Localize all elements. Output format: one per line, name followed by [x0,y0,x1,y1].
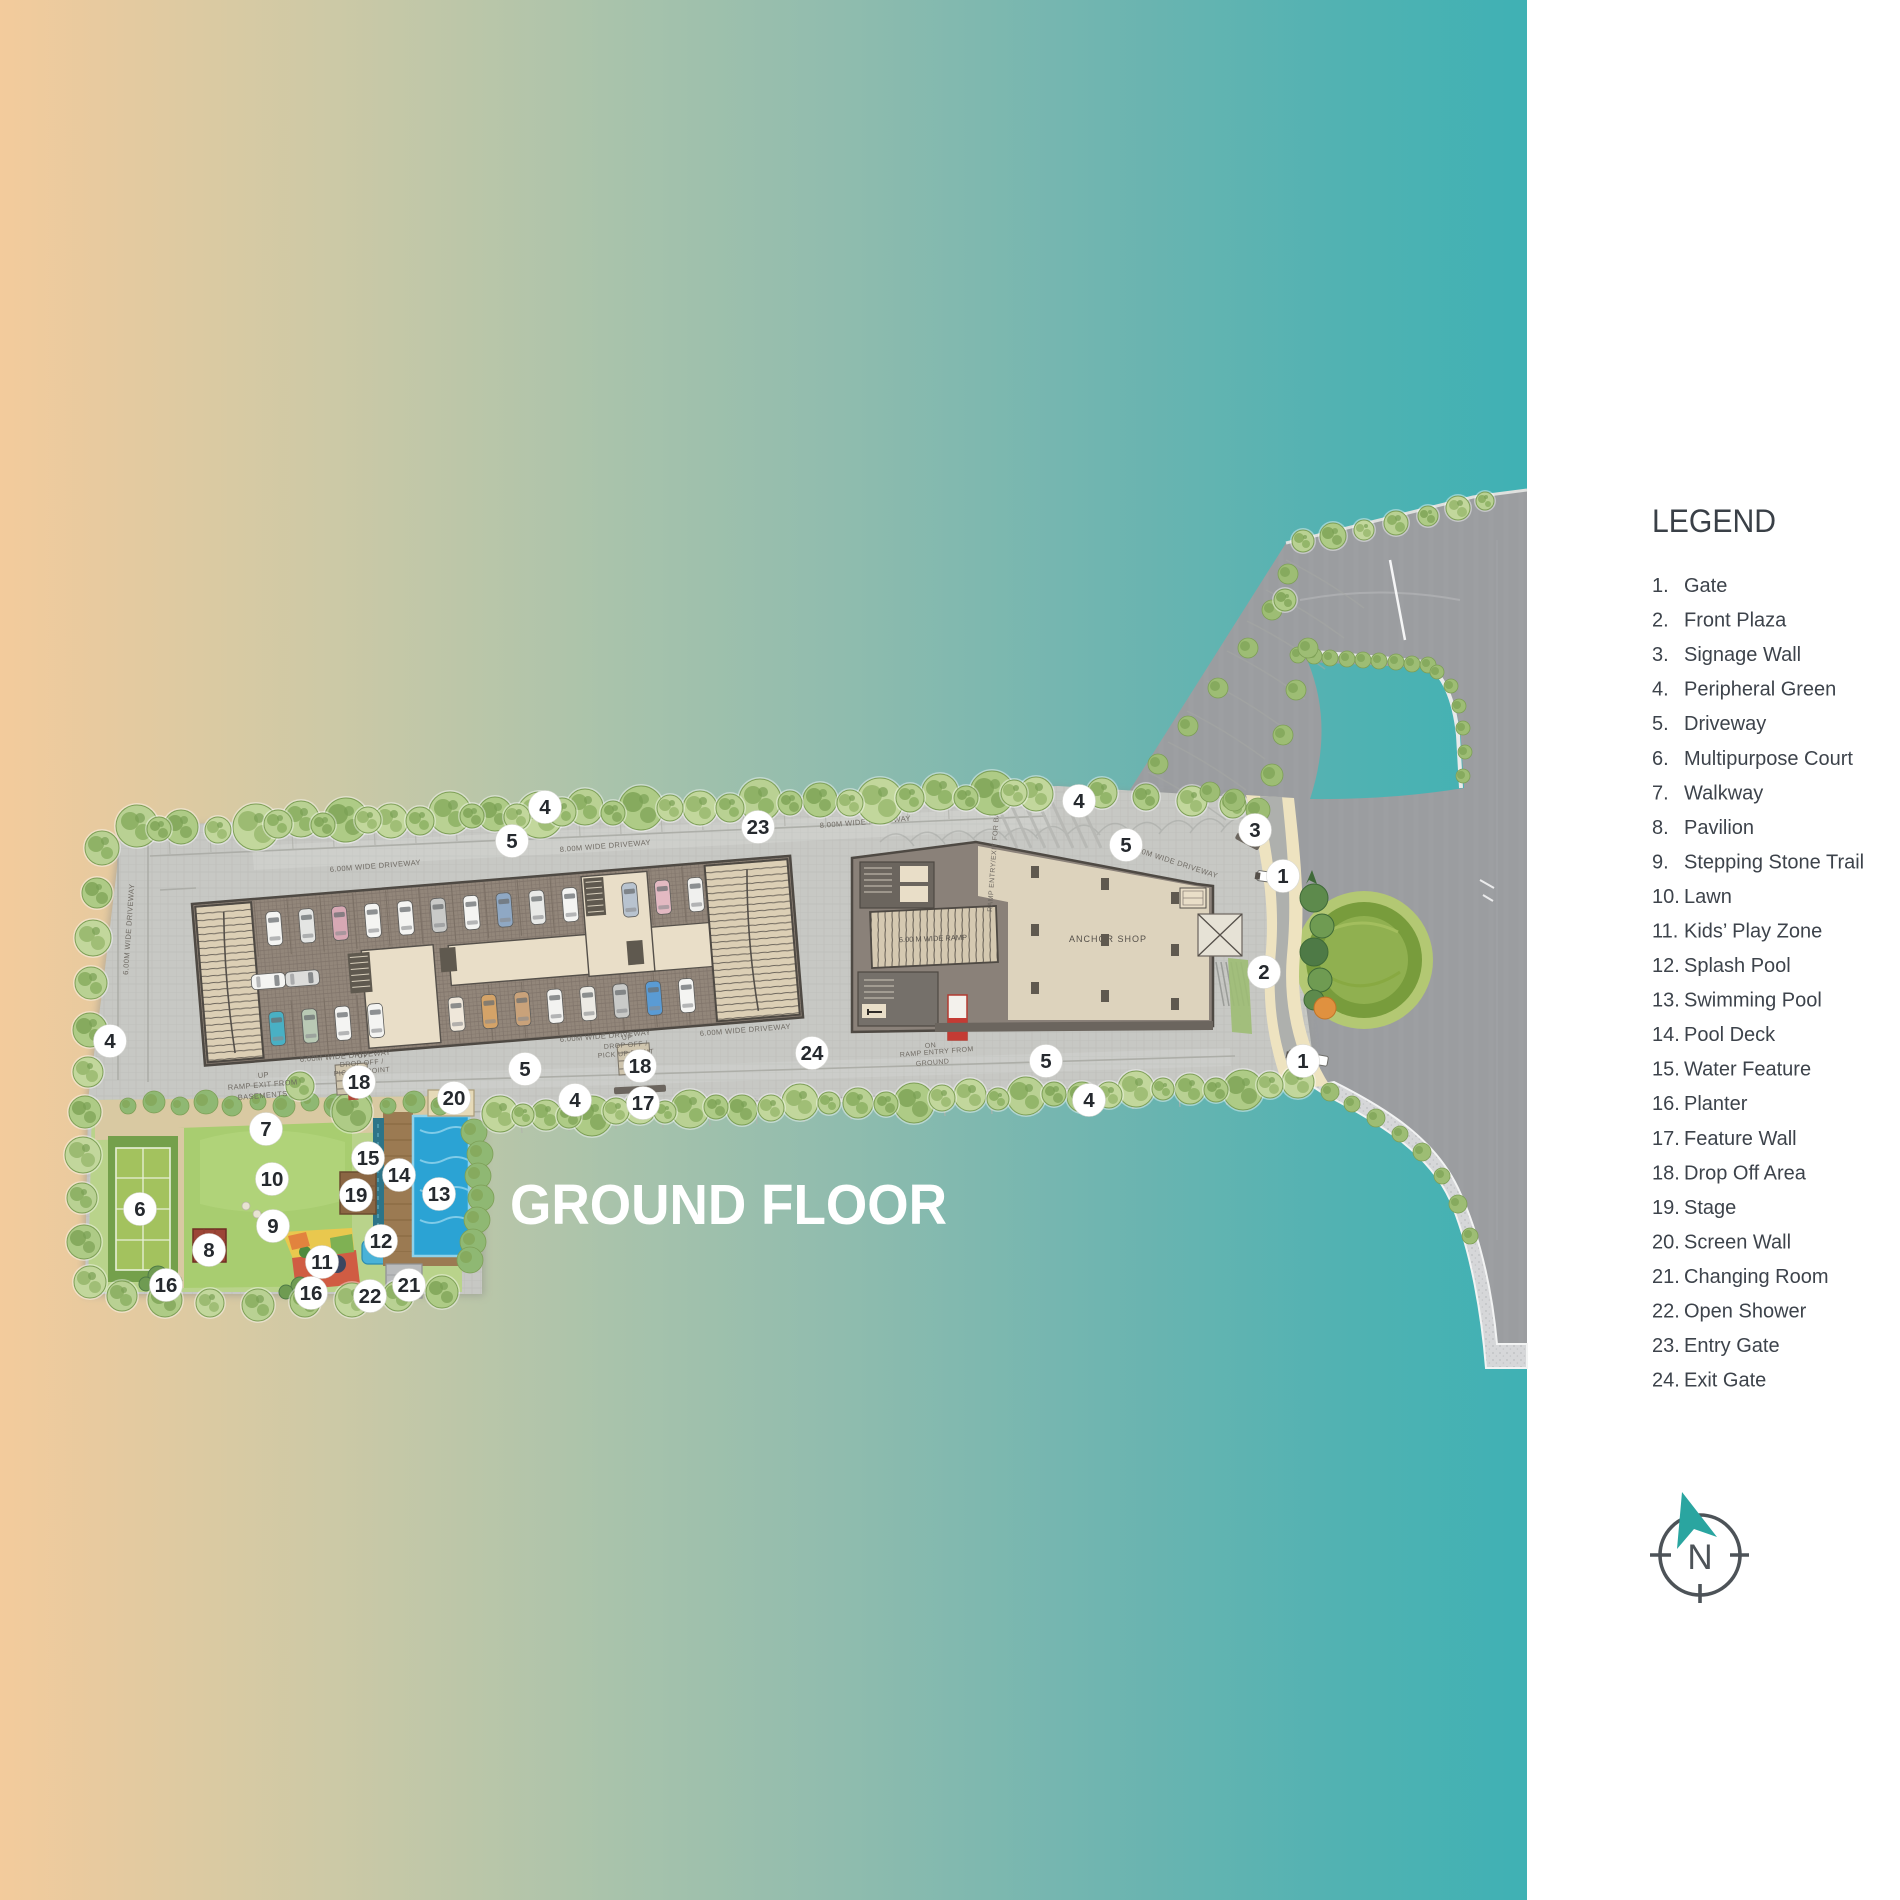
svg-text:6.: 6. [1652,748,1669,770]
svg-text:2.: 2. [1652,610,1669,632]
svg-text:5: 5 [506,830,517,853]
svg-text:11: 11 [311,1251,333,1274]
svg-text:7.: 7. [1652,782,1669,804]
svg-text:19: 19 [345,1184,368,1207]
svg-text:Driveway: Driveway [1684,713,1766,735]
svg-text:23: 23 [747,816,770,839]
svg-text:Splash Pool: Splash Pool [1684,955,1791,977]
svg-text:18.: 18. [1652,1162,1680,1184]
svg-text:5: 5 [519,1058,530,1081]
svg-text:Entry Gate: Entry Gate [1684,1335,1780,1357]
svg-text:N: N [1687,1538,1712,1577]
svg-text:18: 18 [629,1055,652,1078]
svg-text:3: 3 [1249,819,1260,842]
svg-text:18: 18 [348,1071,371,1094]
svg-text:5: 5 [1040,1050,1051,1073]
svg-text:13: 13 [428,1183,451,1206]
svg-text:4: 4 [539,796,551,819]
svg-text:8.: 8. [1652,817,1669,839]
svg-text:22: 22 [359,1285,382,1308]
svg-text:1: 1 [1277,865,1288,888]
svg-text:GROUND FLOOR: GROUND FLOOR [510,1173,947,1237]
svg-text:Multipurpose Court: Multipurpose Court [1684,748,1853,770]
svg-text:Drop Off Area: Drop Off Area [1684,1162,1807,1184]
svg-text:10.: 10. [1652,886,1680,908]
svg-text:1.: 1. [1652,575,1669,597]
svg-text:20.: 20. [1652,1231,1680,1253]
svg-text:19.: 19. [1652,1197,1680,1219]
svg-text:Exit Gate: Exit Gate [1684,1370,1766,1392]
svg-text:5.: 5. [1652,713,1669,735]
svg-text:12.: 12. [1652,955,1680,977]
svg-text:Open Shower: Open Shower [1684,1301,1807,1323]
svg-text:Front Plaza: Front Plaza [1684,610,1787,632]
svg-text:4: 4 [104,1030,116,1053]
svg-text:9.: 9. [1652,851,1669,873]
svg-text:16: 16 [155,1274,178,1297]
svg-text:4: 4 [1083,1089,1095,1112]
svg-text:Screen Wall: Screen Wall [1684,1231,1791,1253]
svg-text:11.: 11. [1652,921,1678,943]
svg-text:Peripheral Green: Peripheral Green [1684,679,1836,701]
svg-text:23.: 23. [1652,1335,1680,1357]
svg-text:2: 2 [1258,961,1269,984]
svg-text:13.: 13. [1652,990,1680,1012]
svg-text:7: 7 [260,1118,271,1141]
svg-text:Pavilion: Pavilion [1684,817,1754,839]
svg-text:14.: 14. [1652,1024,1680,1046]
svg-text:1: 1 [1297,1050,1308,1073]
svg-text:24.: 24. [1652,1370,1680,1392]
svg-text:Kids’ Play Zone: Kids’ Play Zone [1684,921,1822,943]
svg-text:20: 20 [443,1087,466,1110]
svg-text:21.: 21. [1652,1266,1680,1288]
svg-text:Stage: Stage [1684,1197,1736,1219]
svg-text:4: 4 [1073,790,1085,813]
svg-text:15.: 15. [1652,1059,1680,1081]
svg-text:8: 8 [203,1239,214,1262]
svg-text:6: 6 [134,1198,145,1221]
svg-text:17: 17 [632,1092,655,1115]
svg-text:24: 24 [801,1042,824,1065]
svg-text:Changing Room: Changing Room [1684,1266,1829,1288]
svg-text:4: 4 [569,1089,581,1112]
svg-text:UP: UP [622,1034,633,1042]
svg-text:Gate: Gate [1684,575,1727,597]
svg-text:22.: 22. [1652,1301,1680,1323]
svg-text:Signage Wall: Signage Wall [1684,644,1801,666]
svg-text:3.: 3. [1652,644,1669,666]
svg-text:4.: 4. [1652,679,1669,701]
svg-text:Stepping Stone Trail: Stepping Stone Trail [1684,851,1864,873]
svg-text:9: 9 [267,1215,278,1238]
svg-text:LEGEND: LEGEND [1652,503,1776,539]
svg-text:Walkway: Walkway [1684,782,1763,804]
svg-text:5: 5 [1120,834,1131,857]
svg-text:Swimming Pool: Swimming Pool [1684,990,1822,1012]
svg-text:UP: UP [257,1070,269,1080]
svg-text:21: 21 [398,1274,421,1297]
svg-text:17.: 17. [1652,1128,1680,1150]
svg-text:Lawn: Lawn [1684,886,1732,908]
svg-text:Water Feature: Water Feature [1684,1059,1811,1081]
svg-text:16: 16 [300,1282,323,1305]
svg-text:12: 12 [370,1230,393,1253]
svg-text:Feature Wall: Feature Wall [1684,1128,1797,1150]
svg-text:15: 15 [357,1147,380,1170]
svg-text:14: 14 [388,1164,411,1187]
svg-text:UP: UP [358,1052,369,1060]
svg-text:16.: 16. [1652,1093,1680,1115]
svg-text:10: 10 [261,1168,284,1191]
svg-text:Planter: Planter [1684,1093,1748,1115]
svg-text:Pool Deck: Pool Deck [1684,1024,1776,1046]
